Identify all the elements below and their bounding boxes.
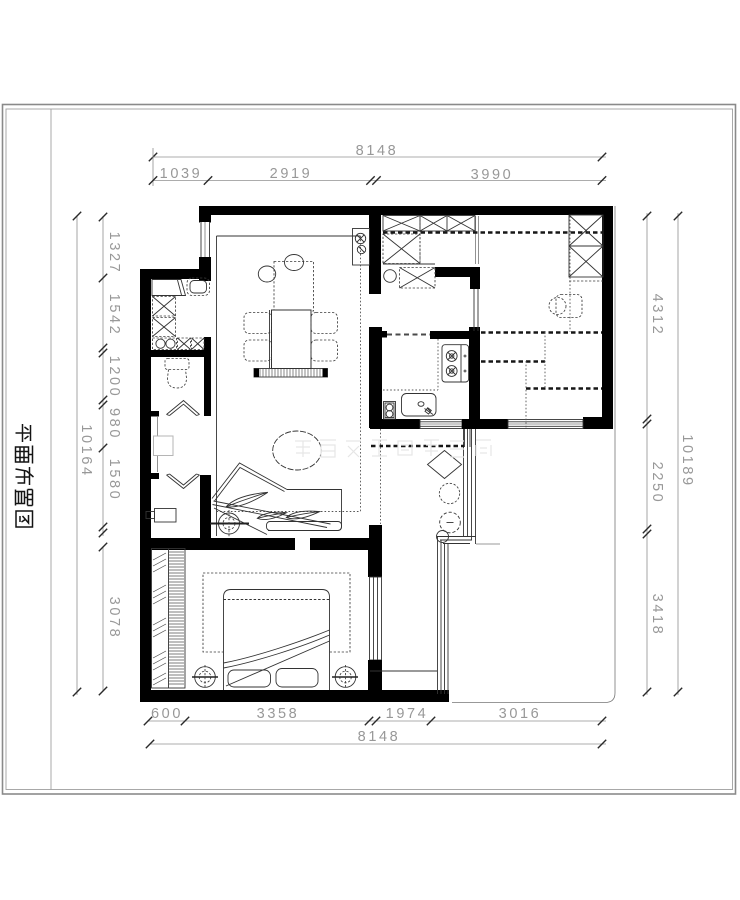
svg-text:600: 600 xyxy=(151,706,183,722)
svg-text:10189: 10189 xyxy=(679,434,695,487)
svg-text:3990: 3990 xyxy=(471,167,514,183)
svg-text:1200: 1200 xyxy=(106,356,122,399)
svg-text:1974: 1974 xyxy=(386,706,429,722)
svg-text:1542: 1542 xyxy=(106,294,122,337)
svg-text:3016: 3016 xyxy=(499,706,542,722)
svg-text:3078: 3078 xyxy=(106,597,122,640)
svg-text:1580: 1580 xyxy=(106,459,122,502)
svg-text:4312: 4312 xyxy=(649,294,665,337)
svg-text:1327: 1327 xyxy=(106,232,122,275)
svg-text:10164: 10164 xyxy=(78,424,94,477)
svg-text:3418: 3418 xyxy=(649,594,665,637)
svg-text:2919: 2919 xyxy=(270,166,313,182)
svg-text:1039: 1039 xyxy=(160,166,203,182)
svg-text:2250: 2250 xyxy=(649,462,665,505)
svg-text:8148: 8148 xyxy=(356,143,399,159)
svg-text:980: 980 xyxy=(106,408,122,440)
svg-text:8148: 8148 xyxy=(358,729,401,745)
svg-text:3358: 3358 xyxy=(257,706,300,722)
